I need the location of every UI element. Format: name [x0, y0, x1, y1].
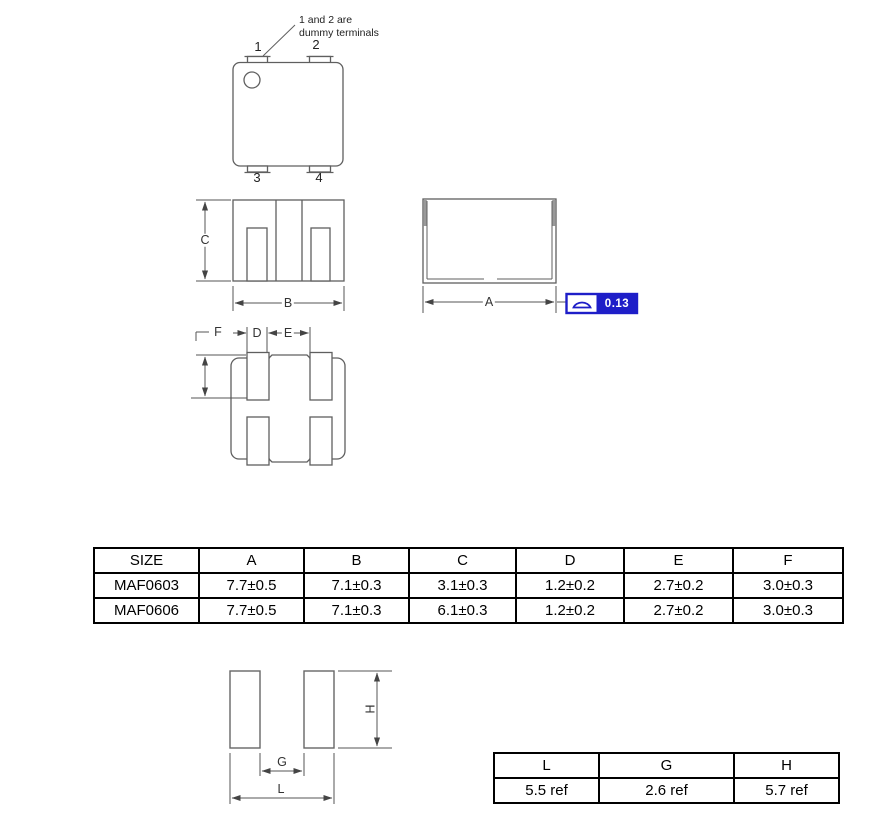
- col-header-h: H: [734, 753, 839, 778]
- value-cell: 3.0±0.3: [733, 598, 843, 623]
- dim-label-d: D: [250, 327, 263, 340]
- table-row: 5.5 ref 2.6 ref 5.7 ref: [494, 778, 839, 803]
- top-view-drawing: [233, 25, 343, 173]
- side-view-drawing: [233, 200, 344, 281]
- terminal-2-label: 2: [312, 38, 319, 51]
- col-header-l: L: [494, 753, 599, 778]
- terminal-3-label: 3: [253, 171, 260, 184]
- land-table-header-row: L G H: [494, 753, 839, 778]
- dim-label-h: H: [363, 702, 376, 715]
- col-header-f: F: [733, 548, 843, 573]
- col-header-e: E: [624, 548, 733, 573]
- value-cell: 2.7±0.2: [624, 598, 733, 623]
- value-cell: 2.6 ref: [599, 778, 734, 803]
- value-cell: 7.7±0.5: [199, 598, 304, 623]
- terminal-4-label: 4: [315, 171, 322, 184]
- dim-label-l: L: [276, 783, 287, 796]
- value-cell: 1.2±0.2: [516, 598, 624, 623]
- value-cell: 5.7 ref: [734, 778, 839, 803]
- terminal-1-label: 1: [254, 40, 261, 53]
- table-row: MAF0603 7.7±0.5 7.1±0.3 3.1±0.3 1.2±0.2 …: [94, 573, 843, 598]
- land-pattern-drawing: [230, 671, 334, 748]
- note-leader-line: [263, 25, 295, 56]
- col-header-d: D: [516, 548, 624, 573]
- value-cell: 7.7±0.5: [199, 573, 304, 598]
- value-cell: 7.1±0.3: [304, 598, 409, 623]
- value-cell: 2.7±0.2: [624, 573, 733, 598]
- dim-label-c: C: [198, 234, 211, 247]
- col-header-b: B: [304, 548, 409, 573]
- dim-label-a: A: [483, 296, 495, 309]
- dummy-terminal-note-line1: 1 and 2 are: [299, 14, 352, 26]
- value-cell: 3.1±0.3: [409, 573, 516, 598]
- value-cell: 1.2±0.2: [516, 573, 624, 598]
- col-header-a: A: [199, 548, 304, 573]
- value-cell: 6.1±0.3: [409, 598, 516, 623]
- datasheet-page: 1 and 2 are dummy terminals 1 2 3 4 C B …: [0, 0, 889, 825]
- size-cell: MAF0606: [94, 598, 199, 623]
- col-header-c: C: [409, 548, 516, 573]
- bottom-view-drawing: [231, 353, 345, 466]
- dim-label-b: B: [282, 297, 294, 310]
- dim-label-f: F: [212, 326, 224, 339]
- dimension-drawing: [0, 0, 889, 825]
- size-table-header-row: SIZE A B C D E F: [94, 548, 843, 573]
- profile-of-surface-icon: [574, 302, 591, 307]
- end-view-drawing: [423, 199, 556, 283]
- size-cell: MAF0603: [94, 573, 199, 598]
- size-dimension-table: SIZE A B C D E F MAF0603 7.7±0.5 7.1±0.3…: [93, 547, 844, 624]
- dim-d-e: [233, 327, 310, 352]
- value-cell: 5.5 ref: [494, 778, 599, 803]
- col-header-size: SIZE: [94, 548, 199, 573]
- dim-label-g: G: [275, 756, 289, 769]
- dummy-terminal-note-line2: dummy terminals: [299, 27, 379, 39]
- col-header-g: G: [599, 753, 734, 778]
- value-cell: 7.1±0.3: [304, 573, 409, 598]
- land-pattern-table: L G H 5.5 ref 2.6 ref 5.7 ref: [493, 752, 840, 804]
- gdt-tolerance-value: 0.13: [597, 294, 637, 313]
- table-row: MAF0606 7.7±0.5 7.1±0.3 6.1±0.3 1.2±0.2 …: [94, 598, 843, 623]
- dim-label-e: E: [282, 327, 294, 340]
- value-cell: 3.0±0.3: [733, 573, 843, 598]
